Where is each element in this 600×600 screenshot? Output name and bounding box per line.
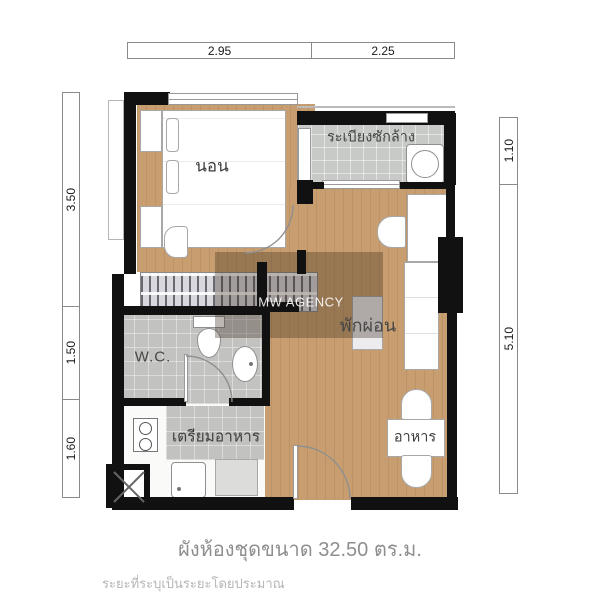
wall bbox=[262, 306, 270, 404]
wall bbox=[229, 398, 270, 406]
wall bbox=[299, 182, 324, 189]
right-dimension-bar: 1.10 5.10 bbox=[499, 118, 516, 494]
bedroom-side-window bbox=[108, 100, 124, 240]
entrance-door-leaf bbox=[293, 445, 298, 499]
wall-column bbox=[438, 237, 463, 313]
dim-left-3: 1.60 bbox=[62, 399, 80, 498]
sink-drain-dot bbox=[177, 487, 181, 491]
balcony-window bbox=[386, 113, 428, 123]
dim-top-1: 2.95 bbox=[127, 42, 312, 59]
bedroom-stool bbox=[164, 226, 188, 258]
living-label: พักผ่อน bbox=[340, 311, 396, 340]
wall bbox=[112, 398, 186, 406]
dining-chair bbox=[401, 389, 432, 420]
wc-door-leaf bbox=[184, 354, 188, 402]
wall bbox=[400, 182, 446, 189]
balcony-sliding-door bbox=[322, 180, 400, 189]
wall bbox=[351, 497, 458, 510]
wall bbox=[297, 111, 455, 125]
wall bbox=[297, 250, 306, 274]
wc-sink-icon bbox=[232, 346, 258, 382]
wall bbox=[112, 497, 294, 510]
bedroom-label: นอน bbox=[195, 153, 228, 180]
wall bbox=[447, 311, 457, 510]
nightstand bbox=[140, 206, 162, 248]
dim-right-1: 1.10 bbox=[499, 117, 518, 185]
pillow bbox=[166, 118, 179, 152]
washer-drum-icon bbox=[411, 150, 439, 178]
desk-chair bbox=[377, 216, 406, 248]
wall bbox=[446, 183, 455, 240]
kitchen-sink-icon bbox=[171, 462, 206, 498]
kitchen-label: เตรียมอาหาร bbox=[172, 424, 260, 449]
laundry-balcony-label: ระเบียงซักล้าง bbox=[327, 126, 415, 149]
dim-right-2: 5.10 bbox=[499, 184, 518, 494]
plan-title: ผังห้องชุดขนาด 32.50 ตร.ม. bbox=[0, 533, 600, 565]
watermark-text: MW AGENCY bbox=[258, 295, 343, 310]
top-dimension-bar: 2.95 2.25 bbox=[128, 42, 455, 59]
stove-icon bbox=[133, 418, 158, 452]
burner-icon bbox=[139, 422, 152, 435]
bedroom-top-window bbox=[168, 93, 298, 105]
wc-label: W.C. bbox=[135, 349, 172, 366]
washing-machine bbox=[406, 144, 444, 184]
refrigerator bbox=[215, 459, 258, 496]
floor-plan-canvas: 2.95 2.25 3.50 1.50 1.60 1.10 5.10 bbox=[0, 0, 600, 600]
plan-note: ระยะที่ระบุเป็นระยะโดยประมาณ bbox=[102, 573, 285, 594]
balcony-side-door bbox=[298, 128, 311, 182]
pillow bbox=[166, 160, 179, 194]
balcony-rail-line bbox=[297, 106, 455, 108]
dim-left-2: 1.50 bbox=[62, 306, 80, 400]
dim-left-1: 3.50 bbox=[62, 92, 80, 307]
dim-top-2: 2.25 bbox=[311, 42, 455, 59]
burner-icon bbox=[139, 438, 152, 451]
sofa bbox=[404, 262, 439, 370]
wall bbox=[112, 306, 265, 315]
nightstand bbox=[140, 110, 162, 152]
sink-tap-dot bbox=[249, 362, 253, 366]
wall bbox=[124, 92, 136, 274]
dining-chair bbox=[401, 455, 432, 488]
dining-label: อาหาร bbox=[394, 426, 436, 449]
left-dimension-bar: 3.50 1.50 1.60 bbox=[62, 93, 78, 498]
